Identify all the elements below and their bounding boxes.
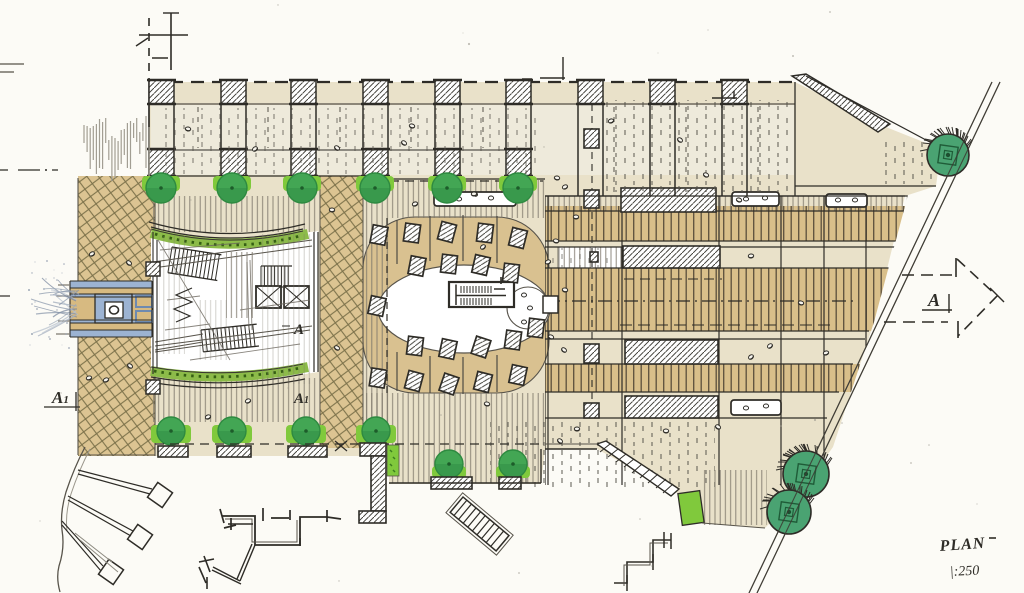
svg-text:PLAN: PLAN xyxy=(938,535,986,555)
svg-text:A: A xyxy=(927,290,940,310)
svg-text:|:250: |:250 xyxy=(949,563,979,580)
svg-text:A: A xyxy=(293,322,304,338)
